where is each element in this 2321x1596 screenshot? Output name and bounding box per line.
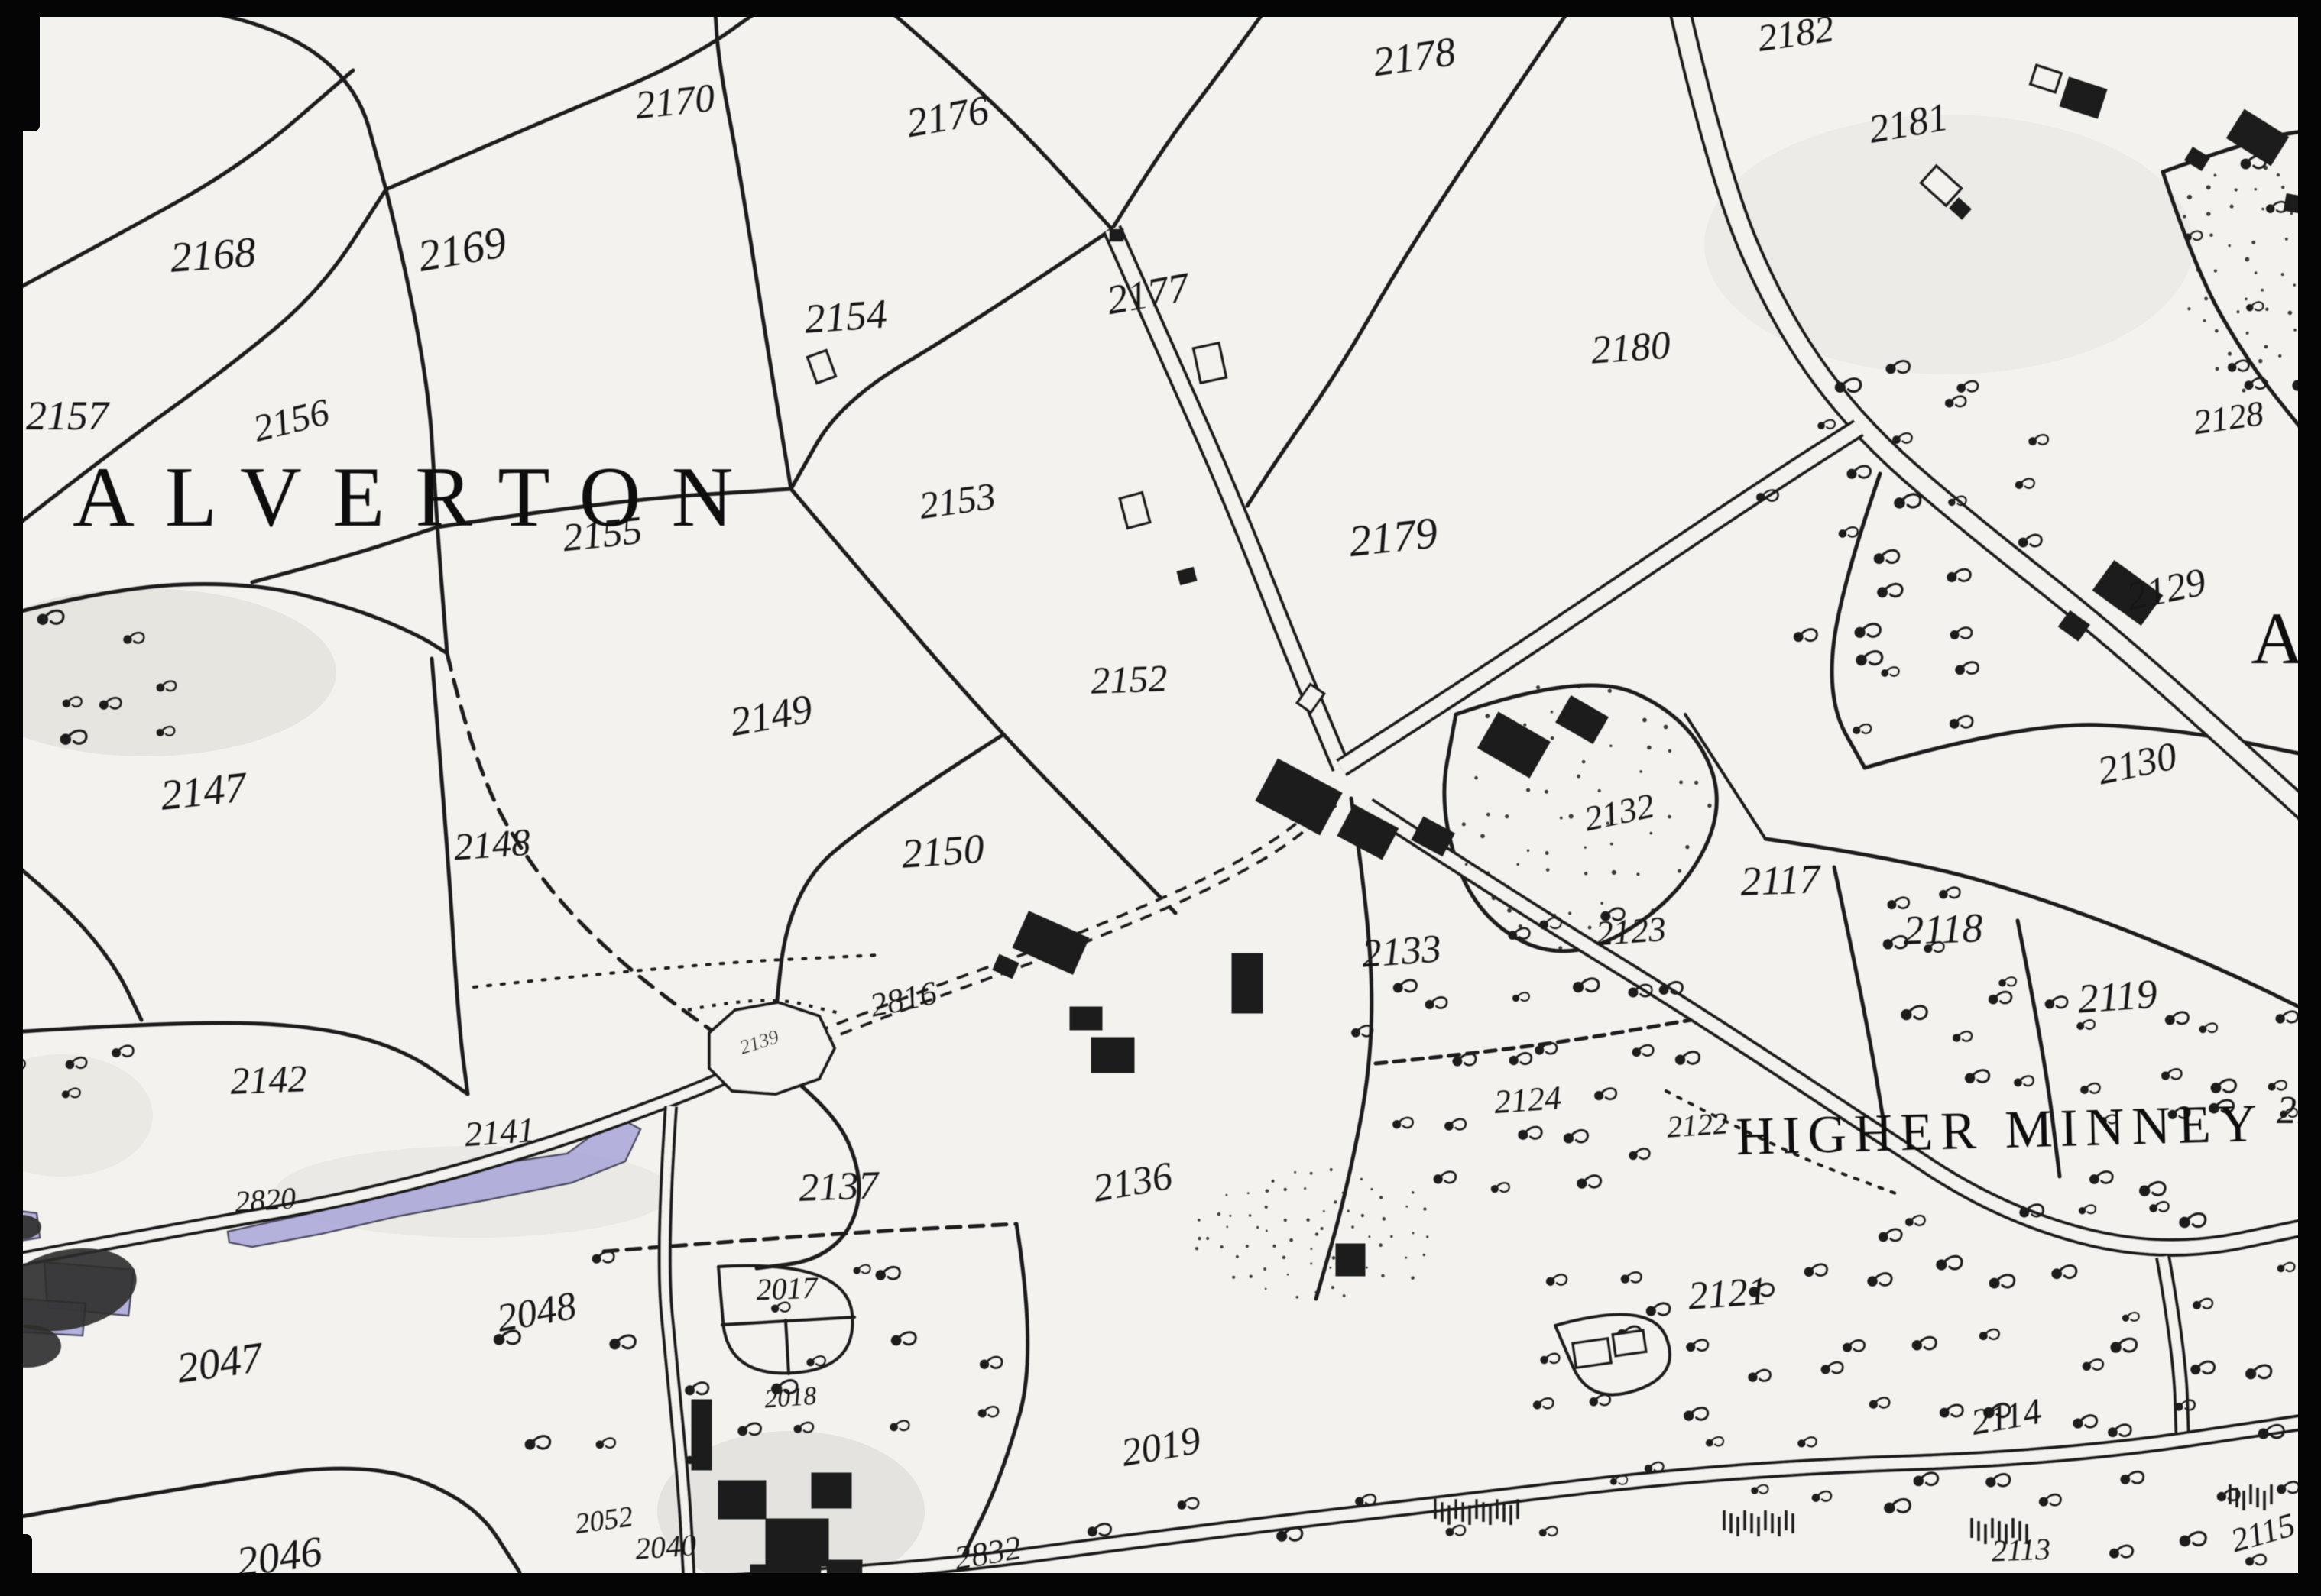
parcel-label-2179: 2179 — [1347, 507, 1440, 566]
parcel-label-2141: 2141 — [463, 1110, 536, 1154]
parcel-label-2117: 2117 — [1739, 856, 1822, 905]
parcel-label-2170: 2170 — [634, 76, 717, 128]
parcel-label-2150: 2150 — [900, 825, 986, 876]
place-name-a: A — [2251, 597, 2303, 679]
parcel-label-2147: 2147 — [158, 763, 250, 820]
parcel-label-2157: 2157 — [26, 393, 110, 439]
parcel-label-2133: 2133 — [1360, 927, 1443, 976]
parcel-label-2142: 2142 — [229, 1057, 307, 1102]
parcel-label-2018: 2018 — [763, 1382, 817, 1414]
parcel-label-2152: 2152 — [1090, 656, 1168, 701]
parcel-label-2123: 2123 — [1594, 909, 1667, 953]
parcel-label-2137: 2137 — [798, 1164, 880, 1210]
parcel-label-2154: 2154 — [803, 290, 889, 342]
historic-map-svg: 2168216921702176217821822181218021772154… — [0, 0, 2321, 1596]
place-name-alverton: ALVERTON — [73, 450, 763, 545]
parcel-label-2113: 2113 — [1991, 1532, 2051, 1568]
parcel-label-2148: 2148 — [452, 821, 532, 869]
parcel-label-2180: 2180 — [1590, 323, 1672, 372]
parcel-label-2017: 2017 — [756, 1271, 820, 1307]
parcel-label-2168: 2168 — [169, 228, 258, 282]
parcel-label-2122: 2122 — [1666, 1106, 1729, 1144]
parcel-label-2119: 2119 — [2076, 970, 2159, 1021]
parcel-label-2124: 2124 — [1493, 1079, 1562, 1121]
parcel-label-2040: 2040 — [634, 1527, 698, 1565]
parcel-label-2121: 2121 — [1687, 1269, 1769, 1318]
parcel-label-2820: 2820 — [234, 1180, 297, 1219]
parcel-label-2118: 2118 — [1902, 905, 1983, 953]
map-page: 2168216921702176217821822181218021772154… — [0, 0, 2321, 1596]
